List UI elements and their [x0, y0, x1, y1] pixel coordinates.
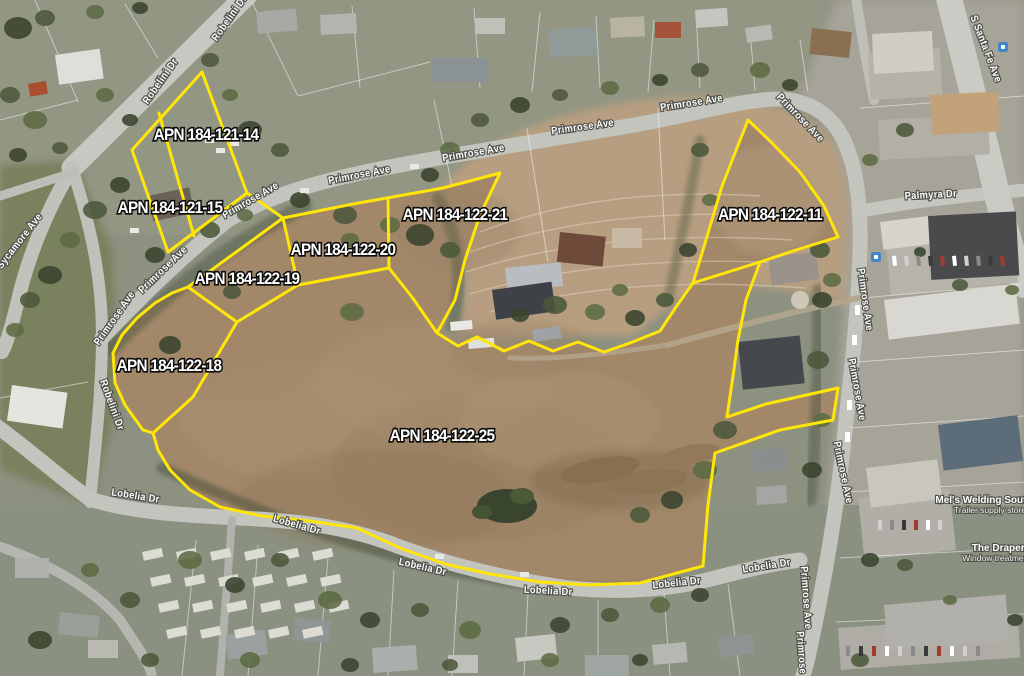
tree — [914, 247, 926, 257]
apn-label-apn-184-122-18: APN 184-122-18 — [117, 356, 222, 375]
tree — [823, 273, 841, 287]
tree — [442, 659, 458, 671]
tree — [120, 592, 140, 608]
tree — [290, 192, 310, 208]
tree — [240, 652, 260, 668]
building — [938, 415, 1023, 470]
tree — [110, 177, 130, 193]
tree — [650, 597, 670, 613]
tree — [812, 292, 832, 308]
parked-car — [410, 164, 419, 169]
apn-label-apn-184-122-21: APN 184-122-21 — [403, 205, 508, 224]
parked-car — [963, 646, 967, 656]
tree — [81, 563, 99, 577]
tree — [1007, 614, 1023, 626]
building — [432, 58, 488, 82]
tree — [750, 62, 770, 78]
tree — [271, 143, 289, 157]
tree — [380, 217, 400, 233]
parked-car — [435, 554, 444, 559]
parked-car — [926, 520, 930, 530]
building — [548, 27, 598, 58]
building — [752, 448, 787, 472]
tree — [862, 154, 878, 166]
building — [585, 655, 629, 676]
parked-car — [898, 646, 902, 656]
tree — [421, 168, 439, 182]
tree — [713, 421, 737, 439]
building — [55, 49, 104, 85]
tree — [159, 336, 181, 354]
tree — [630, 507, 650, 523]
building — [930, 91, 1000, 135]
parked-car — [890, 520, 894, 530]
tree — [652, 74, 668, 86]
building — [738, 336, 805, 390]
building — [475, 18, 505, 34]
tree — [86, 5, 104, 19]
apn-label-apn-184-122-11: APN 184-122-11 — [718, 205, 823, 224]
apn-label-apn-184-122-19: APN 184-122-19 — [195, 269, 300, 288]
tree — [0, 87, 20, 103]
tree — [318, 591, 342, 609]
tree — [952, 279, 968, 291]
tree — [612, 284, 628, 296]
parked-car — [300, 188, 309, 193]
tree — [625, 310, 645, 326]
tree — [585, 304, 605, 320]
parked-car — [847, 400, 852, 410]
parked-car — [950, 646, 954, 656]
tree — [6, 323, 24, 337]
tree — [691, 143, 709, 157]
tree — [340, 303, 364, 321]
parked-car — [520, 572, 529, 577]
tree — [122, 114, 138, 126]
parked-car — [914, 520, 918, 530]
tree — [511, 308, 529, 322]
building — [372, 645, 418, 673]
tree — [691, 588, 709, 602]
parked-car — [924, 646, 928, 656]
parked-car — [938, 520, 942, 530]
tree — [52, 142, 68, 154]
tree — [96, 88, 114, 102]
building — [809, 28, 851, 58]
tree — [271, 553, 289, 567]
tree — [341, 658, 359, 672]
map-canvas[interactable]: Robelini DrRobelini DrRobelini DrSycamor… — [0, 0, 1024, 676]
building — [58, 612, 100, 638]
tree — [222, 89, 238, 101]
tree — [471, 113, 489, 127]
parked-car — [911, 646, 915, 656]
parked-car — [855, 305, 860, 315]
apn-label-apn-184-122-25: APN 184-122-25 — [390, 426, 495, 445]
tree — [661, 491, 683, 509]
parked-car — [902, 520, 906, 530]
tree — [459, 621, 481, 639]
tree — [691, 63, 709, 77]
tree — [35, 10, 55, 26]
tree — [782, 79, 798, 91]
bus-stop-icon[interactable] — [998, 42, 1008, 52]
building — [88, 640, 118, 658]
aerial-parcel-map: Robelini DrRobelini DrRobelini DrSycamor… — [0, 0, 1024, 676]
tree — [896, 123, 914, 137]
tree — [20, 292, 40, 308]
parked-car — [852, 335, 857, 345]
building — [612, 228, 642, 248]
tree — [132, 2, 148, 14]
apn-label-apn-184-121-14: APN 184-121-14 — [154, 125, 259, 144]
tree — [679, 243, 697, 257]
tree — [23, 111, 47, 129]
tree — [861, 553, 879, 567]
poi-sublabel: Trailer supply store — [954, 505, 1024, 515]
tree — [632, 654, 648, 666]
tree — [178, 551, 202, 569]
parked-car — [846, 646, 850, 656]
tree — [510, 97, 530, 113]
parked-car — [885, 646, 889, 656]
tree — [411, 603, 429, 617]
tree — [28, 631, 52, 649]
building — [15, 558, 49, 578]
parked-car — [976, 646, 980, 656]
tree — [541, 653, 559, 667]
tree — [406, 224, 434, 246]
building — [695, 8, 728, 28]
building — [557, 232, 606, 267]
tree — [550, 617, 570, 633]
bus-stop-icon[interactable] — [871, 252, 881, 262]
building — [928, 211, 1019, 280]
tree — [225, 577, 245, 593]
building — [756, 485, 787, 505]
parked-car — [859, 646, 863, 656]
apn-label-apn-184-121-15: APN 184-121-15 — [118, 198, 223, 217]
building — [655, 22, 681, 38]
building — [450, 320, 473, 331]
tree — [1005, 285, 1019, 295]
building — [256, 9, 298, 34]
tree — [360, 612, 380, 628]
tree — [601, 81, 619, 95]
tree — [601, 608, 619, 622]
parked-car — [845, 432, 850, 442]
tree — [4, 17, 32, 39]
tree — [897, 559, 913, 571]
tree — [38, 266, 62, 284]
building — [791, 291, 809, 309]
tree — [943, 595, 957, 605]
parked-car — [130, 228, 139, 233]
tree — [440, 242, 460, 258]
tree — [802, 462, 822, 478]
tree — [83, 201, 107, 219]
tree — [60, 232, 80, 248]
apn-label-apn-184-122-20: APN 184-122-20 — [291, 240, 396, 259]
building — [652, 642, 688, 665]
tree — [543, 296, 567, 314]
tree — [145, 247, 165, 263]
building — [610, 16, 645, 38]
poi-sublabel: Window treatment store — [962, 553, 1024, 563]
parked-car — [216, 148, 225, 153]
tree — [656, 293, 674, 307]
tree — [9, 148, 27, 162]
tree — [201, 53, 219, 67]
parked-car — [878, 520, 882, 530]
tree — [552, 89, 568, 101]
parked-car — [872, 646, 876, 656]
parked-car — [937, 646, 941, 656]
building — [320, 13, 357, 35]
tree — [807, 351, 829, 369]
tree — [141, 653, 159, 667]
building — [872, 31, 934, 74]
